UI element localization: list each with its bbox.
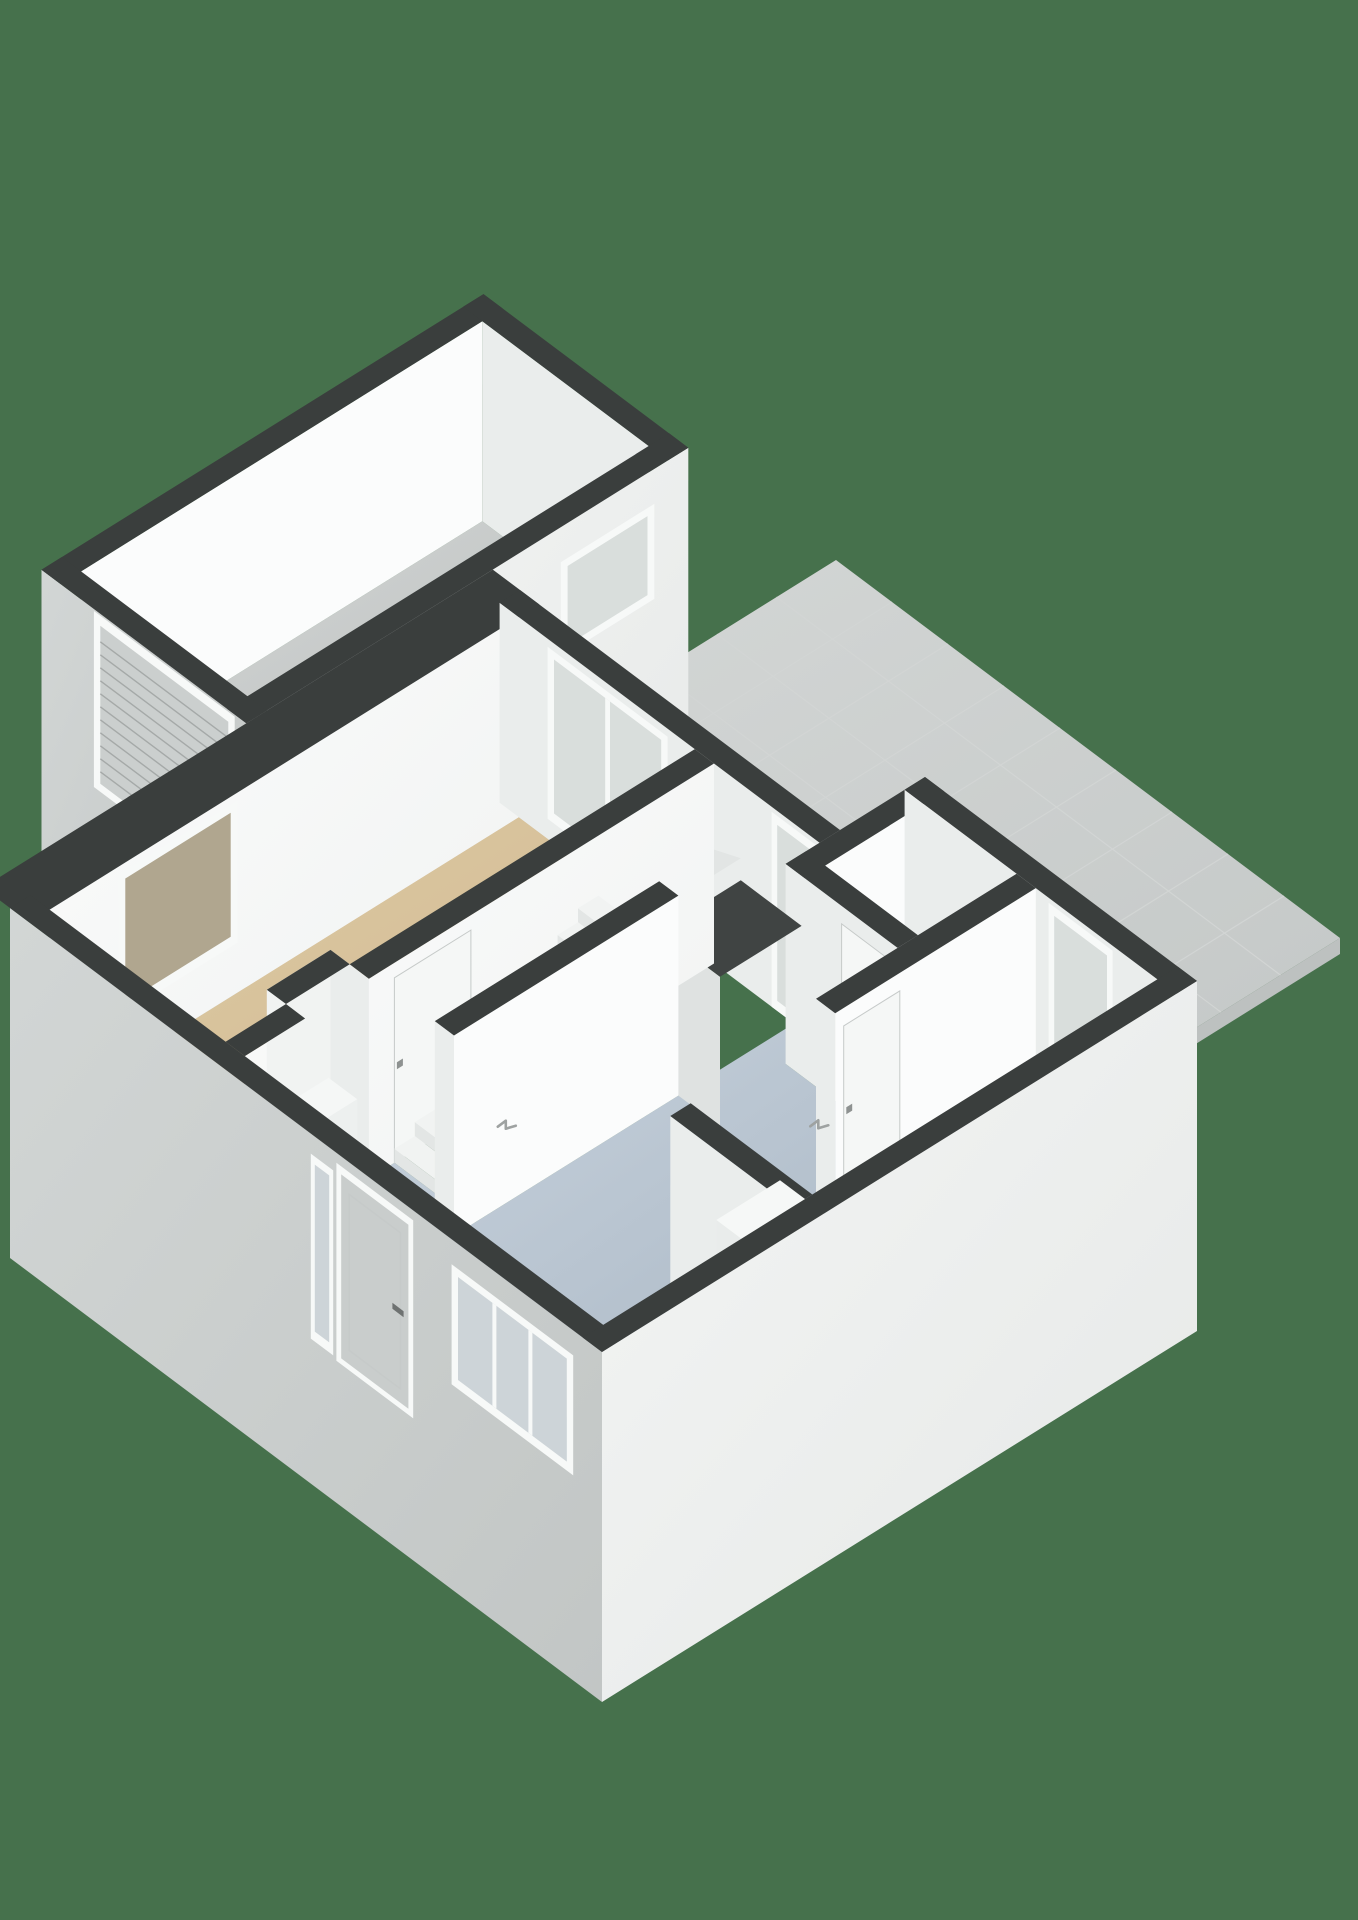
floor-plan-3d-render: [0, 0, 1358, 1920]
floor-plan-canvas: [0, 0, 1358, 1920]
